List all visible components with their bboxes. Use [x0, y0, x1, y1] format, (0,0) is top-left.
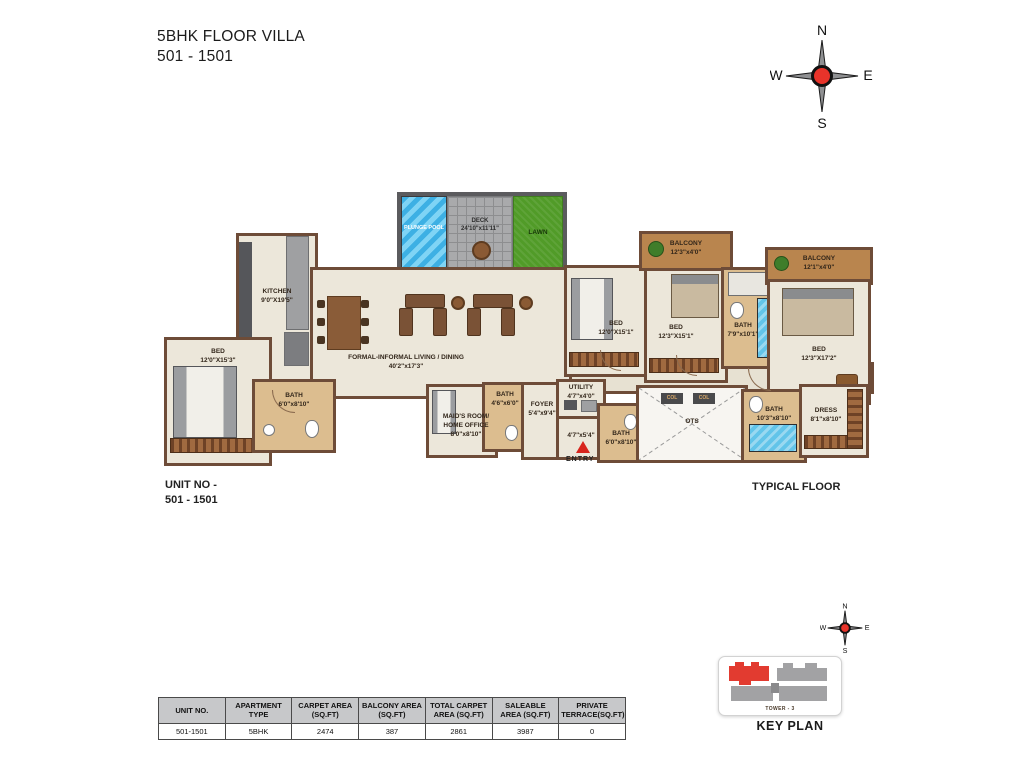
toilet-fixture	[305, 420, 319, 438]
page-title-line1: 5BHK FLOOR VILLA	[157, 27, 305, 47]
table-header-carpet-area: CARPET AREA (SQ.FT)	[292, 698, 359, 724]
room-bath-5: BATH10'3"x8'10"	[741, 389, 807, 463]
table-row: 501-1501 5BHK 2474 387 2861 3987 0	[159, 723, 626, 739]
room-label: KITCHEN9'0"X19'5"	[239, 288, 315, 306]
table-header-private-terrace: PRIVATE TERRACE(SQ.FT)	[559, 698, 626, 724]
room-label: 4'7"x5'4"	[559, 432, 603, 441]
room-label: BATH6'0"x8'10"	[600, 430, 642, 448]
dining-table-furniture	[327, 296, 361, 350]
room-label: BED12'3"X17'2"	[770, 346, 868, 364]
sofa-furniture	[399, 308, 413, 336]
room-balcony-1: BALCONY12'3"x4'0"	[639, 231, 733, 271]
keyplan-tower-label: TOWER - 3	[719, 706, 841, 712]
kitchen-fridge	[284, 332, 309, 366]
cell-apartment-type: 5BHK	[225, 723, 292, 739]
room-living-dining: FORMAL-INFORMAL LIVING / DINING40'2"x17'…	[310, 267, 572, 399]
room-label: BATH10'3"x8'10"	[744, 406, 804, 424]
room-label: BED12'0"X15'1"	[587, 320, 645, 338]
key-plan-caption: KEY PLAN	[740, 719, 840, 733]
column-marker: COL	[693, 393, 715, 404]
table-header-total-carpet-area: TOTAL CARPET AREA (SQ.FT)	[425, 698, 492, 724]
room-lawn: LAWN	[513, 196, 563, 268]
room-label: DRESS8'1"x8'10"	[802, 407, 850, 425]
sink-fixture	[263, 424, 275, 436]
unit-number-caption: UNIT NO - 501 - 1501	[165, 478, 218, 508]
keyplan-highlighted-tower	[751, 662, 759, 667]
room-label: OTS	[639, 418, 745, 427]
cell-saleable-area: 3987	[492, 723, 559, 739]
keyplan-highlighted-tower	[739, 681, 751, 685]
area-statement-table: UNIT NO. APARTMENT TYPE CARPET AREA (SQ.…	[158, 697, 626, 740]
room-label: BATH6'0"x8'10"	[255, 392, 333, 410]
room-label: DECK24'10"x11'11"	[448, 217, 512, 233]
svg-text:E: E	[865, 623, 870, 632]
wardrobe-furniture	[170, 438, 261, 453]
table-header-saleable-area: SALEABLE AREA (SQ.FT)	[492, 698, 559, 724]
room-label: FOYER5'4"x9'4"	[524, 401, 560, 419]
room-deck: DECK24'10"x11'11"	[447, 196, 513, 268]
cell-total-carpet-area: 2861	[425, 723, 492, 739]
room-label: BED12'3"X15'1"	[647, 324, 705, 342]
dining-chair-furniture	[361, 336, 369, 344]
entry-label: ENTRY	[566, 456, 594, 463]
floor-plan-page: 5BHK FLOOR VILLA 501 - 1501 N E S W PLUN…	[0, 0, 1024, 768]
jacuzzi-fixture	[749, 424, 797, 452]
bed-furniture	[671, 274, 719, 318]
column-marker: COL	[661, 393, 683, 404]
room-plunge-pool: PLUNGE POOL	[401, 196, 447, 268]
compass-n-label: N	[817, 22, 827, 38]
side-table-furniture	[519, 296, 533, 310]
kitchen-counter	[286, 236, 309, 330]
toilet-fixture	[505, 425, 518, 441]
room-label: FORMAL-INFORMAL LIVING / DINING40'2"x17'…	[313, 354, 499, 372]
typical-floor-caption: TYPICAL FLOOR	[752, 481, 840, 493]
dining-chair-furniture	[361, 318, 369, 326]
sofa-furniture	[473, 294, 513, 308]
entry-arrow-icon	[576, 441, 590, 453]
keyplan-tower	[783, 663, 793, 668]
keyplan-highlighted-tower	[729, 666, 769, 681]
keyplan-tower	[779, 686, 827, 701]
room-label: BATH4'6"x6'0"	[485, 391, 525, 409]
dining-chair-furniture	[361, 300, 369, 308]
room-dress: DRESS8'1"x8'10"	[799, 384, 869, 458]
dining-chair-furniture	[317, 318, 325, 326]
wardrobe-furniture	[804, 435, 848, 449]
keyplan-connector	[771, 683, 779, 693]
room-label: PLUNGE POOL	[402, 225, 446, 232]
bed-furniture	[173, 366, 237, 438]
compass-rose-icon: N E S W	[770, 22, 874, 130]
side-table-furniture	[451, 296, 465, 310]
room-label: BALCONY12'3"x4'0"	[642, 240, 730, 258]
dining-chair-furniture	[317, 336, 325, 344]
dining-chair-furniture	[317, 300, 325, 308]
sofa-furniture	[405, 294, 445, 308]
sofa-furniture	[501, 308, 515, 336]
keyplan-compass-icon: N E S W	[820, 602, 870, 654]
page-title-line2: 501 - 1501	[157, 47, 305, 67]
svg-text:W: W	[820, 623, 826, 632]
cell-balcony-area: 387	[359, 723, 426, 739]
shower-area	[728, 272, 770, 296]
table-header-apartment-type: APARTMENT TYPE	[225, 698, 292, 724]
svg-text:N: N	[842, 602, 847, 610]
cell-carpet-area: 2474	[292, 723, 359, 739]
room-label: MAID'S ROOM/ HOME OFFICE8'0"x8'10"	[437, 413, 495, 439]
deck-table-furniture	[472, 241, 491, 260]
outdoor-strip: PLUNGE POOL DECK24'10"x11'11" LAWN	[397, 192, 567, 272]
page-title: 5BHK FLOOR VILLA 501 - 1501	[157, 27, 305, 67]
table-header-row: UNIT NO. APARTMENT TYPE CARPET AREA (SQ.…	[159, 698, 626, 724]
sofa-furniture	[433, 308, 447, 336]
keyplan-tower	[805, 663, 817, 668]
room-label: BATH7'9"x10'1"	[724, 322, 762, 340]
bed-furniture	[782, 288, 854, 336]
keyplan-highlighted-tower	[735, 662, 744, 667]
room-label: UTILITY4'7"x4'0"	[559, 384, 603, 402]
room-label: LAWN	[514, 229, 562, 238]
key-plan: TOWER - 3	[718, 656, 842, 716]
cell-private-terrace: 0	[559, 723, 626, 739]
table-header-unit-no: UNIT NO.	[159, 698, 226, 724]
room-label: BED12'0"X15'3"	[167, 348, 269, 366]
room-label: BALCONY12'1"x4'0"	[768, 255, 870, 273]
svg-text:S: S	[843, 646, 848, 654]
dryer-appliance	[581, 400, 597, 412]
compass-w-label: W	[770, 67, 783, 83]
keyplan-tower	[731, 686, 773, 701]
keyplan-tower	[777, 668, 827, 681]
compass-s-label: S	[817, 115, 826, 130]
room-ots: COL COL OTS	[636, 385, 748, 463]
compass-e-label: E	[863, 67, 872, 83]
cell-unit-no: 501-1501	[159, 723, 226, 739]
sofa-furniture	[467, 308, 481, 336]
toilet-fixture	[730, 302, 744, 319]
table-header-balcony-area: BALCONY AREA (SQ.FT)	[359, 698, 426, 724]
